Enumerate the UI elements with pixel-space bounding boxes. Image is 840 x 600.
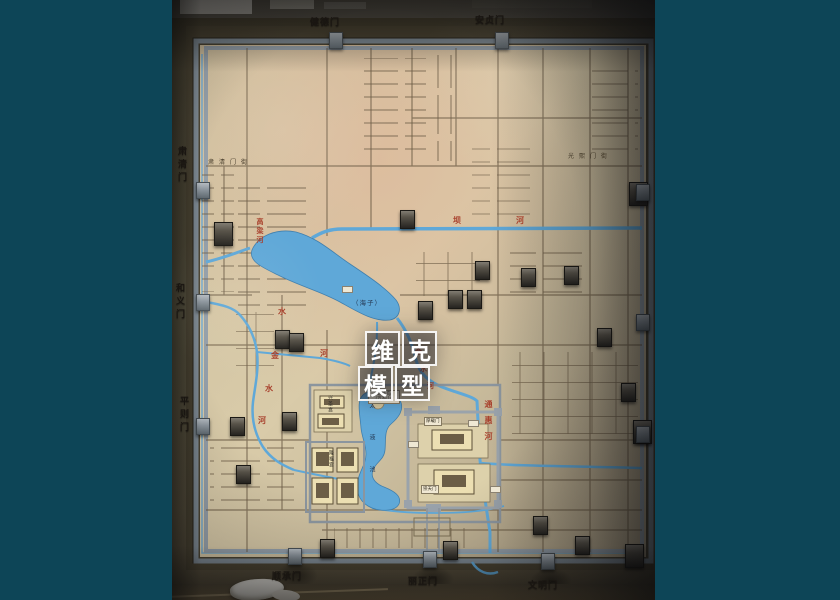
gate-tower xyxy=(636,314,650,331)
building-model xyxy=(575,536,590,555)
tiny-label xyxy=(408,441,419,448)
river-label-bahe-1: 坝 xyxy=(453,215,461,226)
gate-label-west-2: 和义门 xyxy=(173,283,186,322)
street-label-northwest: 肃清门街 xyxy=(208,157,252,166)
street-label-northeast: 光熙门街 xyxy=(568,151,612,160)
gate-tower xyxy=(495,32,509,49)
building-model xyxy=(282,412,297,431)
watermark-char: 型 xyxy=(395,366,430,401)
river-label-jinshui-3: 河 xyxy=(258,415,266,426)
palace-gate-label-houzaimen: 厚载门 xyxy=(424,417,442,426)
gate-label-north-1: 健德门 xyxy=(310,15,340,28)
gate-label-south-1: 顺承门 xyxy=(272,569,302,582)
gate-label-north-2: 安贞门 xyxy=(475,13,505,26)
river-label-gaoliang: 高梁河 xyxy=(255,218,265,245)
building-model xyxy=(236,465,251,484)
building-model xyxy=(230,417,245,436)
building-model xyxy=(564,266,579,285)
river-label-jinshui-1: 金 xyxy=(271,350,279,361)
building-model xyxy=(475,261,490,280)
river-label-jinshui-upper: 水 xyxy=(278,306,286,317)
river-label-tonghui: 通惠河 xyxy=(483,400,494,448)
building-model xyxy=(214,222,233,246)
building-model xyxy=(320,539,335,558)
watermark: 维 克 模 型 xyxy=(364,330,438,402)
tiny-label xyxy=(342,286,353,293)
watermark-char: 维 xyxy=(365,331,400,366)
building-model xyxy=(448,290,463,309)
museum-photo: 健德门 安贞门 肃清门 和义门 平则门 顺承门 丽正门 文明门 肃清门街 光熙门… xyxy=(0,0,840,600)
building-model xyxy=(275,330,290,349)
gate-label-west-3: 平则门 xyxy=(177,396,190,435)
building-model xyxy=(443,541,458,560)
gate-label-south-3: 文明门 xyxy=(528,578,558,591)
palace-label-xingshenggong: 兴圣宫 xyxy=(327,395,334,413)
gate-tower xyxy=(196,294,210,311)
building-model xyxy=(418,301,433,320)
photo-area: 健德门 安贞门 肃清门 和义门 平则门 顺承门 丽正门 文明门 肃清门街 光熙门… xyxy=(172,0,655,600)
gate-tower xyxy=(636,184,650,201)
river-label-jinshui-east: 河 xyxy=(320,348,328,359)
letterbox-left xyxy=(0,0,172,600)
building-model xyxy=(467,290,482,309)
watermark-row-2: 模 型 xyxy=(357,365,438,402)
gate-tower xyxy=(329,32,343,49)
river-label-bahe-2: 河 xyxy=(516,215,524,226)
letterbox-right xyxy=(655,0,840,600)
building-model xyxy=(400,210,415,229)
tiny-label xyxy=(490,486,501,493)
building-model xyxy=(533,516,548,535)
lake-label-haizi: （海子） xyxy=(352,297,382,307)
gate-label-south-2: 丽正门 xyxy=(408,574,438,587)
palace-label-longfugong: 隆福宫 xyxy=(328,450,335,468)
building-model xyxy=(521,268,536,287)
watermark-char: 克 xyxy=(402,331,437,366)
building-model xyxy=(621,383,636,402)
tiny-label xyxy=(468,420,479,427)
lake-label-taiye: 太液池 xyxy=(367,402,376,498)
gate-tower xyxy=(636,426,650,443)
gate-tower xyxy=(196,182,210,199)
watermark-row-1: 维 克 xyxy=(364,330,438,367)
map-board-graphics xyxy=(172,0,655,600)
watermark-char: 模 xyxy=(358,366,393,401)
gate-tower xyxy=(196,418,210,435)
building-model xyxy=(625,544,644,568)
palace-gate-label-chongtianmen: 崇天门 xyxy=(421,485,439,494)
river-label-jinshui-2: 水 xyxy=(265,383,273,394)
building-model xyxy=(597,328,612,347)
gate-label-west-1: 肃清门 xyxy=(175,146,188,185)
building-model xyxy=(289,333,304,352)
